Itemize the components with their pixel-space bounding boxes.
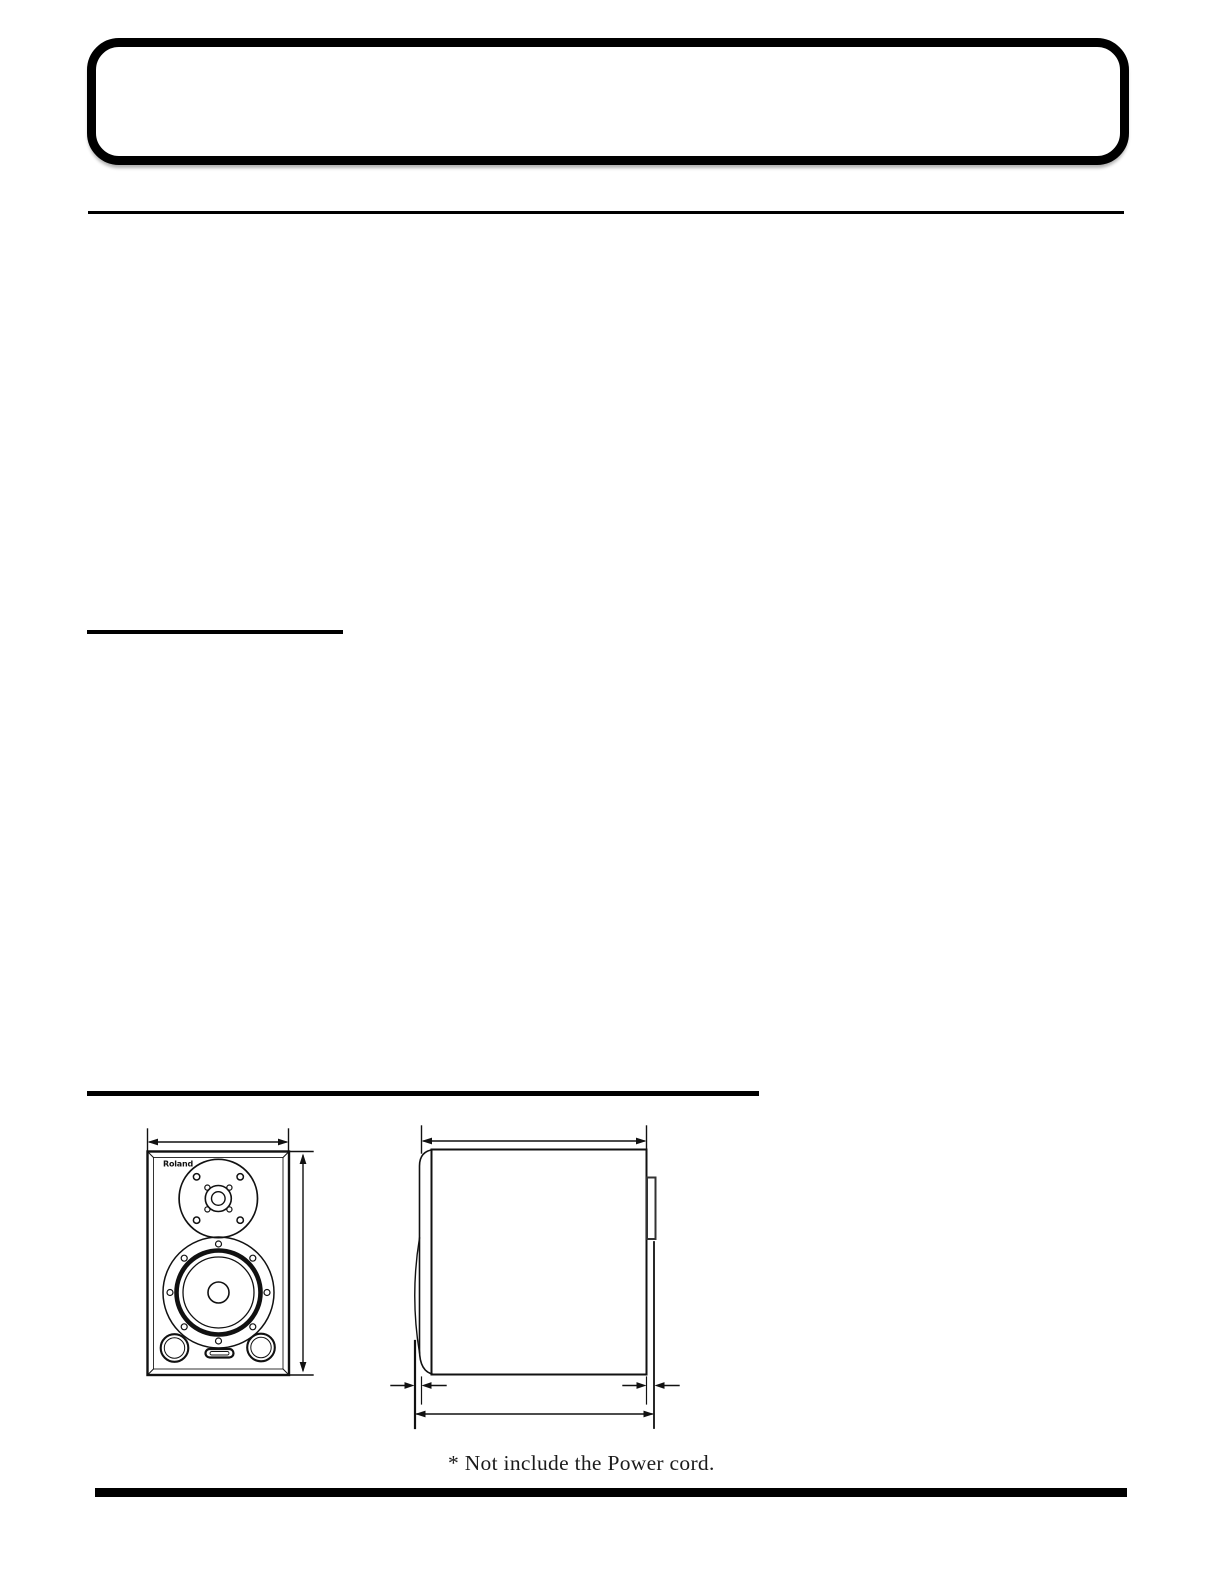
speaker-dimension-diagram: Roland — [120, 1118, 700, 1440]
title-box — [87, 38, 1129, 165]
section-underline-long — [87, 1091, 759, 1096]
section-underline-short — [87, 630, 343, 634]
power-cord-footnote: * Not include the Power cord. — [448, 1451, 715, 1476]
front-height-dimension-arrow — [290, 1152, 313, 1376]
front-width-dimension-arrow — [148, 1129, 289, 1152]
rear-panel-protrusion — [647, 1178, 656, 1240]
manual-page: Roland — [0, 0, 1225, 1585]
front-view-drawing: Roland — [148, 1129, 314, 1375]
side-view-drawing — [391, 1126, 679, 1428]
top-divider-line — [88, 211, 1124, 214]
footer-bar — [95, 1488, 1127, 1497]
side-cabinet — [415, 1150, 647, 1375]
brand-logo: Roland — [163, 1160, 193, 1169]
total-depth-dimension-arrow — [415, 1411, 654, 1418]
